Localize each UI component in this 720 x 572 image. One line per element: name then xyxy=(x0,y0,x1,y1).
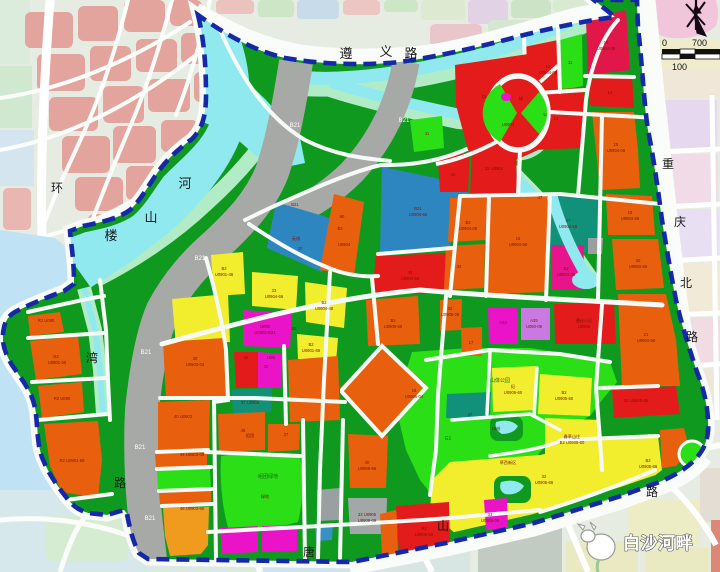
svg-text:无线: 无线 xyxy=(292,235,301,242)
svg-text:33: 33 xyxy=(488,512,493,517)
svg-text:U0904-08: U0904-08 xyxy=(557,272,576,277)
svg-text:U: U xyxy=(543,112,546,117)
svg-text:U0904-48: U0904-48 xyxy=(315,306,334,311)
svg-text:U0908-09: U0908-09 xyxy=(358,518,377,523)
svg-text:700: 700 xyxy=(692,38,707,48)
svg-text:U0906-66: U0906-66 xyxy=(384,324,403,329)
svg-text:R2 U090: R2 U090 xyxy=(38,318,55,323)
svg-text:B21: B21 xyxy=(414,206,422,211)
svg-text:47: 47 xyxy=(468,412,473,417)
svg-text:18: 18 xyxy=(412,388,417,393)
svg-text:路: 路 xyxy=(404,46,417,61)
svg-text:90: 90 xyxy=(340,214,345,219)
svg-text:40: 40 xyxy=(365,460,370,465)
svg-text:32: 32 xyxy=(298,246,303,251)
svg-text:U0904-66: U0904-66 xyxy=(559,224,578,229)
svg-text:B2: B2 xyxy=(465,220,471,225)
svg-text:义: 义 xyxy=(379,44,392,59)
svg-text:40 U0903: 40 U0903 xyxy=(174,414,193,419)
svg-text:U0901-66: U0901-66 xyxy=(48,360,67,365)
svg-text:37 U0906: 37 U0906 xyxy=(241,400,260,405)
svg-text:22 U0905-66: 22 U0905-66 xyxy=(624,398,649,403)
svg-text:唐: 唐 xyxy=(303,544,315,559)
svg-text:12: 12 xyxy=(546,64,551,69)
svg-text:庆: 庆 xyxy=(674,215,686,229)
svg-text:B21: B21 xyxy=(290,123,301,129)
svg-text:47: 47 xyxy=(538,195,543,200)
svg-text:U0903-B21: U0903-B21 xyxy=(254,330,276,335)
svg-text:B21: B21 xyxy=(291,202,299,207)
svg-text:B2: B2 xyxy=(563,266,569,271)
svg-text:U0905-66: U0905-66 xyxy=(535,480,554,485)
svg-text:16: 16 xyxy=(516,236,521,241)
svg-text:33 U0906: 33 U0906 xyxy=(358,512,377,517)
svg-text:白沙河畔: 白沙河畔 xyxy=(623,533,693,553)
svg-text:重: 重 xyxy=(662,157,674,171)
svg-text:B21: B21 xyxy=(135,445,146,451)
svg-text:14: 14 xyxy=(608,90,613,95)
svg-text:20: 20 xyxy=(636,258,641,263)
svg-text:U0905-60: U0905-60 xyxy=(555,396,574,401)
svg-text:39: 39 xyxy=(193,356,198,361)
svg-text:32: 32 xyxy=(451,172,456,177)
svg-text:19: 19 xyxy=(628,210,633,215)
svg-text:遵: 遵 xyxy=(339,46,352,61)
svg-text:11: 11 xyxy=(425,131,430,136)
svg-text:环: 环 xyxy=(51,181,63,195)
svg-text:R2: R2 xyxy=(53,354,59,359)
svg-text:32 U0904: 32 U0904 xyxy=(485,166,504,171)
svg-text:U0906-08: U0906-08 xyxy=(441,312,460,317)
svg-text:R2 U090: R2 U090 xyxy=(54,396,71,401)
svg-text:43: 43 xyxy=(408,270,413,275)
svg-text:U0904-08: U0904-08 xyxy=(459,226,478,231)
svg-text:B2: B2 xyxy=(645,458,651,463)
svg-text:路: 路 xyxy=(646,484,658,499)
svg-text:B21: B21 xyxy=(141,350,152,356)
svg-text:32: 32 xyxy=(448,306,453,311)
svg-text:B2: B2 xyxy=(337,226,343,231)
svg-text:46 U0903-66: 46 U0903-66 xyxy=(180,506,205,511)
svg-text:A33: A33 xyxy=(499,320,507,325)
svg-text:U0904: U0904 xyxy=(502,122,515,127)
svg-text:山: 山 xyxy=(437,519,449,533)
svg-text:U090: U090 xyxy=(260,324,271,329)
svg-text:B2: B2 xyxy=(390,318,396,323)
svg-text:U0905-60: U0905-60 xyxy=(504,390,523,395)
svg-text:路: 路 xyxy=(686,329,698,344)
svg-text:湾: 湾 xyxy=(86,350,98,365)
svg-text:U0904-06: U0904-06 xyxy=(597,46,616,51)
svg-text:河: 河 xyxy=(178,176,191,191)
svg-text:U0904-66: U0904-66 xyxy=(265,294,284,299)
svg-text:32: 32 xyxy=(542,474,547,479)
svg-text:U0905: U0905 xyxy=(578,324,591,329)
svg-text:U0906-04: U0906-04 xyxy=(405,394,424,399)
svg-text:B2: B2 xyxy=(561,390,567,395)
svg-text:U0905-08: U0905-08 xyxy=(481,518,500,523)
svg-text:U0905-66: U0905-66 xyxy=(639,464,658,469)
svg-text:U0901-46: U0901-46 xyxy=(215,272,234,277)
svg-text:47: 47 xyxy=(566,218,571,223)
svg-text:春草山庄: 春草山庄 xyxy=(564,433,581,440)
svg-text:U0904-66: U0904-66 xyxy=(629,264,648,269)
svg-text:U0904-66: U0904-66 xyxy=(637,338,656,343)
svg-text:草西新区: 草西新区 xyxy=(500,459,517,466)
svg-text:R2 U0901-68: R2 U0901-68 xyxy=(60,458,86,463)
svg-text:15: 15 xyxy=(614,142,619,147)
svg-text:B21: B21 xyxy=(399,118,410,124)
svg-text:楼: 楼 xyxy=(104,228,117,243)
svg-text:12: 12 xyxy=(554,116,559,121)
svg-text:11: 11 xyxy=(568,60,573,65)
svg-text:R2: R2 xyxy=(421,526,427,531)
svg-text:G1: G1 xyxy=(445,436,452,442)
svg-text:15: 15 xyxy=(482,94,487,99)
svg-text:21: 21 xyxy=(644,332,649,337)
svg-text:山: 山 xyxy=(144,210,157,225)
svg-text:U0903-04: U0903-04 xyxy=(186,362,205,367)
svg-text:U0904-66: U0904-66 xyxy=(621,216,640,221)
svg-text:绿地: 绿地 xyxy=(261,493,270,499)
svg-text:B21: B21 xyxy=(145,516,156,522)
svg-text:U090-08: U090-08 xyxy=(526,324,543,329)
svg-text:U0904: U0904 xyxy=(338,242,351,247)
svg-text:B2: B2 xyxy=(291,326,297,331)
svg-text:B2: B2 xyxy=(308,342,314,347)
svg-text:0: 0 xyxy=(662,38,667,48)
svg-text:U0904-66: U0904-66 xyxy=(409,212,428,217)
svg-text:B2: B2 xyxy=(221,266,227,271)
svg-text:U0904-66: U0904-66 xyxy=(401,276,420,281)
svg-text:U0904-06: U0904-06 xyxy=(607,148,626,153)
svg-text:组团: 组团 xyxy=(246,432,254,439)
svg-text:100: 100 xyxy=(672,62,687,72)
svg-text:B21: B21 xyxy=(195,256,206,262)
svg-text:遵化小区: 遵化小区 xyxy=(576,317,593,324)
svg-text:北: 北 xyxy=(680,276,692,290)
svg-text:42: 42 xyxy=(244,355,249,360)
svg-text:10结: 10结 xyxy=(492,425,501,432)
svg-text:U0901-66: U0901-66 xyxy=(302,348,321,353)
svg-text:路: 路 xyxy=(114,475,126,490)
svg-text:U0908-66: U0908-66 xyxy=(358,466,377,471)
svg-text:37: 37 xyxy=(284,432,289,437)
svg-text:山体公园: 山体公园 xyxy=(490,377,510,384)
svg-text:17: 17 xyxy=(469,340,474,345)
svg-text:33: 33 xyxy=(457,264,462,269)
svg-text:U0904-06: U0904-06 xyxy=(539,70,558,75)
svg-text:B2: B2 xyxy=(321,300,327,305)
svg-text:13: 13 xyxy=(604,40,609,45)
svg-text:44 U0903-08: 44 U0903-08 xyxy=(180,452,205,457)
svg-text:U09: U09 xyxy=(267,355,275,360)
svg-text:B2 U0905-60: B2 U0905-60 xyxy=(560,440,585,445)
svg-text:U0904-66: U0904-66 xyxy=(509,242,528,247)
svg-text:组团绿地: 组团绿地 xyxy=(258,473,278,480)
svg-text:32: 32 xyxy=(264,364,269,369)
svg-text:U0906-66: U0906-66 xyxy=(415,532,434,537)
svg-text:33: 33 xyxy=(272,288,277,293)
svg-text:A35: A35 xyxy=(530,318,538,323)
